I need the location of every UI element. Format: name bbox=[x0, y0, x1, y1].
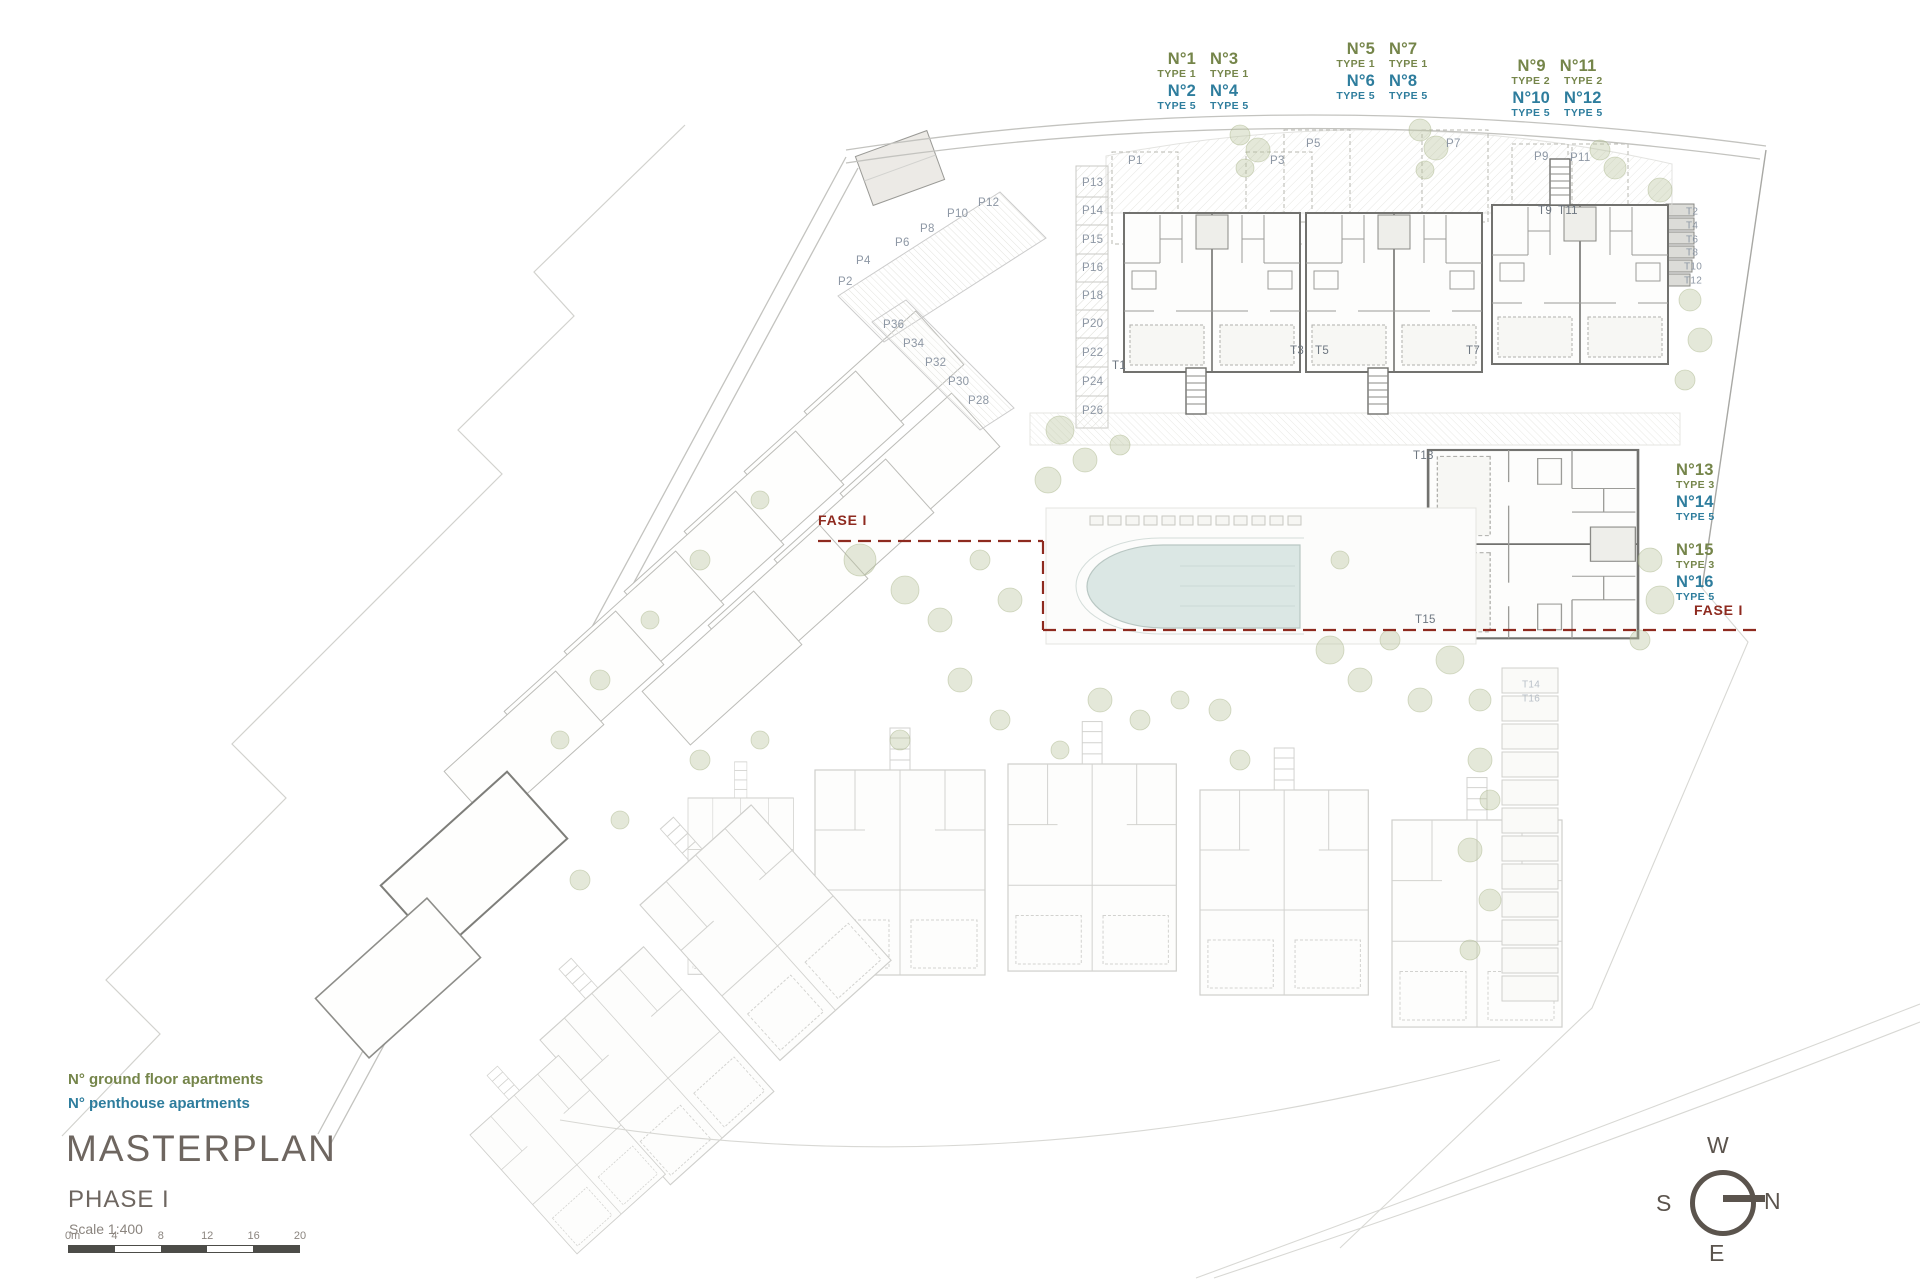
unit-label-row: N°5N°7 bbox=[1329, 39, 1434, 59]
legend-ground-floor: N° ground floor apartments bbox=[68, 1068, 263, 1092]
plan-label-p26: P26 bbox=[1082, 405, 1103, 417]
scale-tick: 20 bbox=[294, 1230, 306, 1242]
plan-label-p13: P13 bbox=[1082, 177, 1103, 189]
plan-label-t8: T8 bbox=[1686, 248, 1698, 259]
compass-east: E bbox=[1709, 1240, 1724, 1267]
unit-label-row: N°16 bbox=[1676, 572, 1715, 592]
plan-label-t7: T7 bbox=[1466, 345, 1480, 357]
units-5-8: N°5N°7TYPE 1TYPE 1N°6N°8TYPE 5TYPE 5 bbox=[1329, 39, 1434, 103]
unit-label: N°12 bbox=[1564, 89, 1602, 107]
plan-label-t4: T4 bbox=[1686, 221, 1698, 232]
unit-label: TYPE 5 bbox=[1676, 511, 1715, 523]
plan-label-p14: P14 bbox=[1082, 205, 1103, 217]
unit-label: TYPE 1 bbox=[1389, 58, 1428, 70]
units-15-16: N°15TYPE 3N°16TYPE 5 bbox=[1676, 540, 1715, 604]
scale-bar-ticks: 0m48121620 bbox=[68, 1230, 300, 1243]
scale-segment bbox=[253, 1246, 299, 1252]
plan-label-p6: P6 bbox=[895, 237, 910, 249]
scale-segment bbox=[161, 1246, 207, 1252]
unit-label: TYPE 1 bbox=[1210, 68, 1249, 80]
scale-segment bbox=[207, 1246, 253, 1252]
unit-label: N°4 bbox=[1210, 82, 1238, 100]
unit-label: N°6 bbox=[1347, 72, 1375, 90]
unit-label: TYPE 1 bbox=[1336, 58, 1375, 70]
unit-label: TYPE 5 bbox=[1564, 107, 1603, 119]
future-phase-buildings bbox=[448, 722, 1562, 1254]
unit-label-row: TYPE 5 bbox=[1676, 512, 1715, 525]
unit-label-row: TYPE 5TYPE 5 bbox=[1329, 91, 1434, 104]
scale-bar-bar bbox=[68, 1245, 300, 1253]
plan-label-t3: T3 bbox=[1290, 345, 1304, 357]
compass-south: S bbox=[1656, 1190, 1671, 1217]
unit-label: TYPE 5 bbox=[1157, 100, 1196, 112]
unit-label: TYPE 5 bbox=[1389, 90, 1428, 102]
unit-label-row: TYPE 1TYPE 1 bbox=[1329, 59, 1434, 72]
fase-label-left: FASE I bbox=[818, 512, 867, 528]
unit-label-row: N°10N°12 bbox=[1504, 88, 1609, 108]
unit-label-row: TYPE 3 bbox=[1676, 560, 1715, 573]
unit-label: N°14 bbox=[1676, 493, 1714, 511]
unit-label-row: N°6N°8 bbox=[1329, 71, 1434, 91]
scale-tick: 8 bbox=[158, 1230, 164, 1242]
unit-label: TYPE 5 bbox=[1336, 90, 1375, 102]
plan-label-t14: T14 bbox=[1522, 680, 1540, 691]
plan-label-t11: T11 bbox=[1558, 205, 1578, 217]
unit-label-row: TYPE 1TYPE 1 bbox=[1150, 69, 1255, 82]
scale-bar: 0m48121620 bbox=[68, 1230, 300, 1253]
unit-label: N°15 bbox=[1676, 541, 1714, 559]
unit-label-row: TYPE 5TYPE 5 bbox=[1150, 101, 1255, 114]
unit-label: N°5 bbox=[1347, 40, 1375, 58]
plan-label-p32: P32 bbox=[925, 357, 946, 369]
compass-west: W bbox=[1707, 1132, 1729, 1159]
plan-label-t6: T6 bbox=[1686, 235, 1698, 246]
plan-label-p11: P11 bbox=[1570, 152, 1591, 164]
unit-label: TYPE 3 bbox=[1676, 559, 1715, 571]
unit-label: TYPE 5 bbox=[1210, 100, 1249, 112]
plan-label-p8: P8 bbox=[920, 223, 935, 235]
fase-label-right: FASE I bbox=[1694, 602, 1743, 618]
unit-label: N°2 bbox=[1168, 82, 1196, 100]
unit-label-row: TYPE 2TYPE 2 bbox=[1504, 76, 1609, 89]
legend-penthouse: N° penthouse apartments bbox=[68, 1092, 263, 1116]
plan-label-p7: P7 bbox=[1446, 138, 1461, 150]
page-title: MASTERPLAN bbox=[66, 1128, 337, 1170]
unit-label: TYPE 2 bbox=[1511, 75, 1550, 87]
plan-label-p10: P10 bbox=[947, 208, 968, 220]
compass-circle bbox=[1690, 1170, 1756, 1236]
unit-label-row: N°2N°4 bbox=[1150, 81, 1255, 101]
plan-label-p20: P20 bbox=[1082, 318, 1103, 330]
unit-label: TYPE 2 bbox=[1564, 75, 1603, 87]
scale-tick: 4 bbox=[111, 1230, 117, 1242]
unit-label: TYPE 3 bbox=[1676, 479, 1715, 491]
scale-tick: 0m bbox=[65, 1230, 80, 1242]
unit-label-row: N°13 bbox=[1676, 460, 1715, 480]
unit-label: N°13 bbox=[1676, 461, 1714, 479]
plan-label-t1: T1 bbox=[1112, 360, 1126, 372]
unit-label: N°10 bbox=[1512, 89, 1550, 107]
plan-label-t13: T13 bbox=[1413, 450, 1434, 462]
masterplan-page: { "title_block": { "title": "MASTERPLAN"… bbox=[0, 0, 1920, 1280]
plan-label-p30: P30 bbox=[948, 376, 969, 388]
compass-needle bbox=[1723, 1195, 1765, 1202]
plan-label-p22: P22 bbox=[1082, 347, 1103, 359]
scale-segment bbox=[69, 1246, 115, 1252]
units-1-4: N°1N°3TYPE 1TYPE 1N°2N°4TYPE 5TYPE 5 bbox=[1150, 49, 1255, 113]
plan-label-p4: P4 bbox=[856, 255, 871, 267]
units-13-14: N°13TYPE 3N°14TYPE 5 bbox=[1676, 460, 1715, 524]
plan-label-p1: P1 bbox=[1128, 155, 1143, 167]
units-9-12: N°9N°11TYPE 2TYPE 2N°10N°12TYPE 5TYPE 5 bbox=[1504, 56, 1609, 120]
compass-rose: W S N E bbox=[1650, 1128, 1800, 1278]
plan-label-t16: T16 bbox=[1522, 694, 1540, 705]
plan-label-p18: P18 bbox=[1082, 290, 1103, 302]
plan-label-p16: P16 bbox=[1082, 262, 1103, 274]
legend: N° ground floor apartments N° penthouse … bbox=[68, 1068, 263, 1116]
plan-label-p3: P3 bbox=[1270, 155, 1285, 167]
plan-label-p28: P28 bbox=[968, 395, 989, 407]
plan-label-p9: P9 bbox=[1534, 151, 1549, 163]
unit-label-row: N°15 bbox=[1676, 540, 1715, 560]
plan-label-p24: P24 bbox=[1082, 376, 1103, 388]
unit-label: N°7 bbox=[1389, 40, 1417, 58]
unit-label-row: N°9N°11 bbox=[1504, 56, 1609, 76]
scale-segment bbox=[115, 1246, 161, 1252]
unit-label: N°11 bbox=[1560, 57, 1597, 75]
plan-label-t15: T15 bbox=[1415, 614, 1436, 626]
plan-label-p34: P34 bbox=[903, 338, 924, 350]
plan-label-p5: P5 bbox=[1306, 138, 1321, 150]
plan-label-p15: P15 bbox=[1082, 234, 1103, 246]
plan-label-p2: P2 bbox=[838, 276, 853, 288]
unit-label: N°3 bbox=[1210, 50, 1238, 68]
unit-label-row: TYPE 5TYPE 5 bbox=[1504, 108, 1609, 121]
plan-label-t5: T5 bbox=[1315, 345, 1329, 357]
compass-north: N bbox=[1764, 1188, 1781, 1215]
unit-label-row: N°1N°3 bbox=[1150, 49, 1255, 69]
plan-label-p36: P36 bbox=[883, 319, 904, 331]
scale-tick: 12 bbox=[201, 1230, 213, 1242]
unit-label: TYPE 1 bbox=[1157, 68, 1196, 80]
plan-label-p12: P12 bbox=[978, 197, 999, 209]
unit-label-row: N°14 bbox=[1676, 492, 1715, 512]
unit-label: N°8 bbox=[1389, 72, 1417, 90]
unit-label-row: TYPE 3 bbox=[1676, 480, 1715, 493]
plan-label-t2: T2 bbox=[1686, 207, 1698, 218]
plan-label-t12: T12 bbox=[1684, 276, 1702, 287]
scale-tick: 16 bbox=[247, 1230, 259, 1242]
unit-label: TYPE 5 bbox=[1676, 591, 1715, 603]
unit-label: N°1 bbox=[1168, 50, 1196, 68]
unit-label: N°9 bbox=[1517, 57, 1545, 75]
plan-label-t10: T10 bbox=[1684, 262, 1702, 273]
plan-label-t9: T9 bbox=[1538, 205, 1552, 217]
unit-label: N°16 bbox=[1676, 573, 1714, 591]
pool-area bbox=[1046, 508, 1476, 644]
unit-label: TYPE 5 bbox=[1511, 107, 1550, 119]
page-phase: PHASE I bbox=[68, 1186, 170, 1214]
site-plan-drawing bbox=[0, 0, 1920, 1280]
